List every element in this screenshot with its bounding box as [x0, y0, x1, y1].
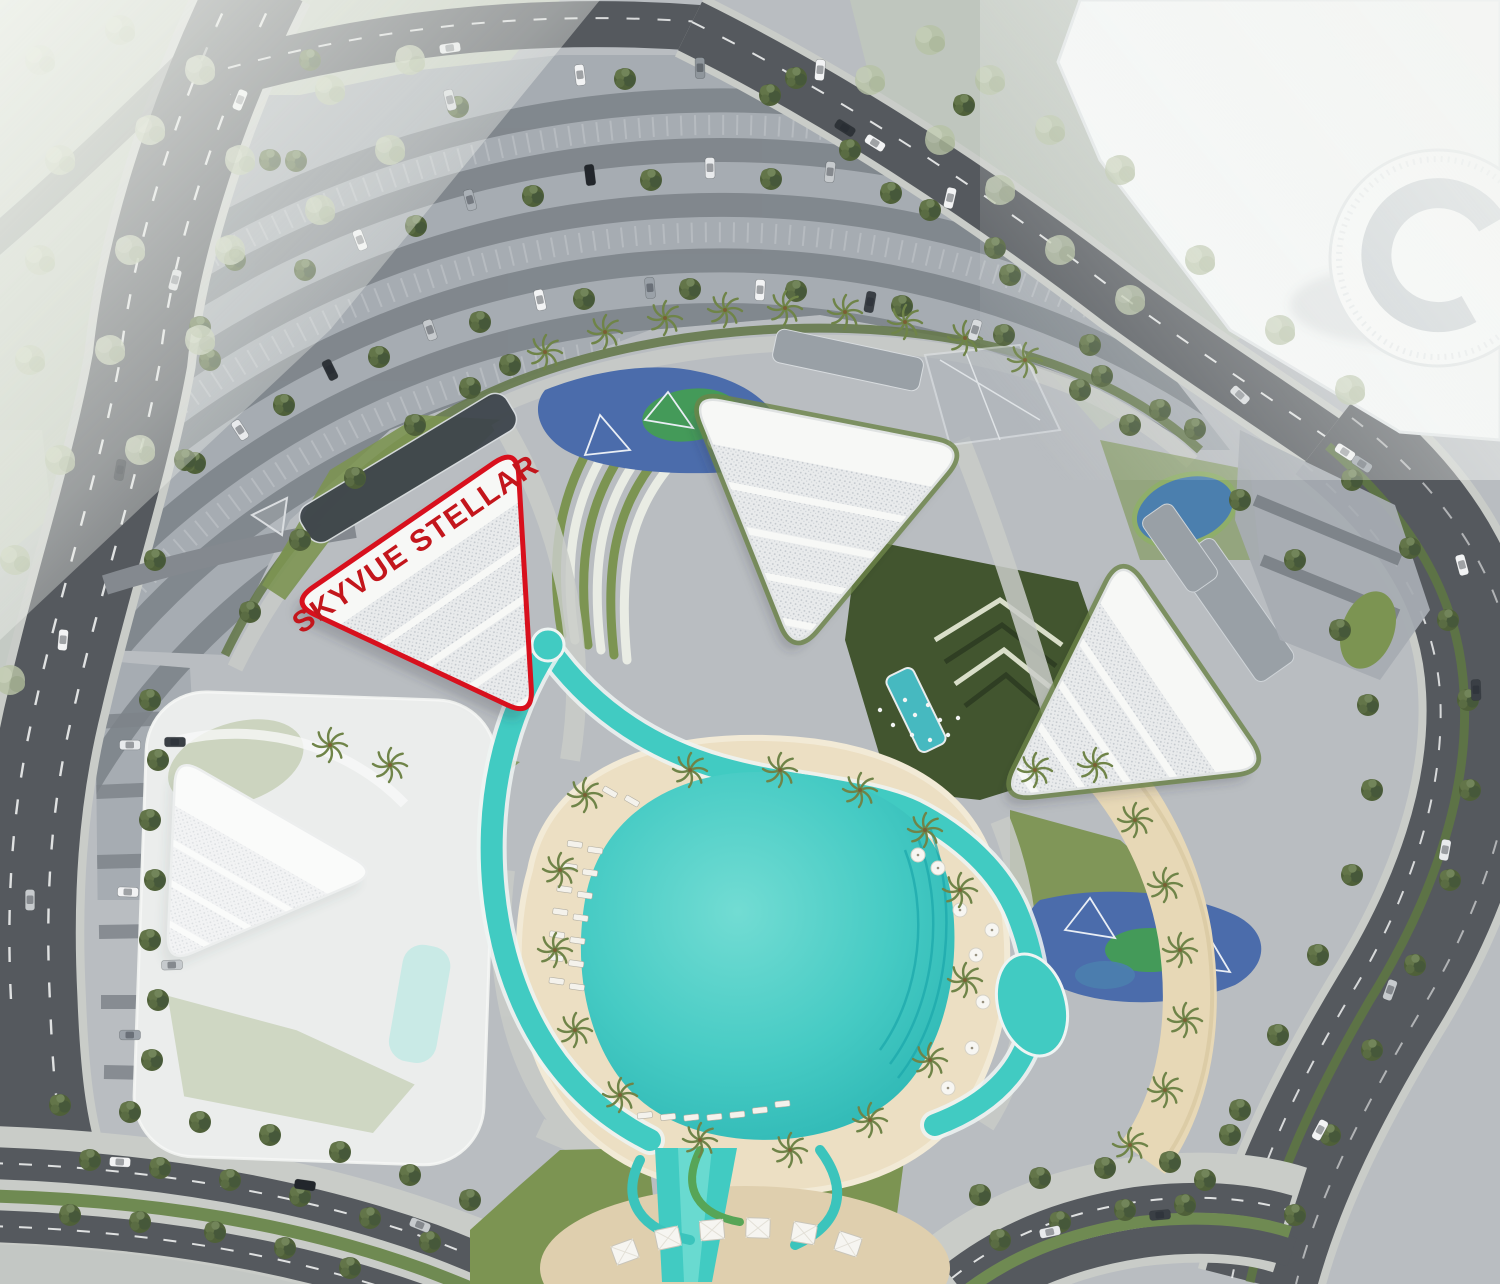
site-plan-render: SKYVUE STELLAR — [0, 0, 1500, 1284]
lagoon-pool — [581, 772, 955, 1140]
